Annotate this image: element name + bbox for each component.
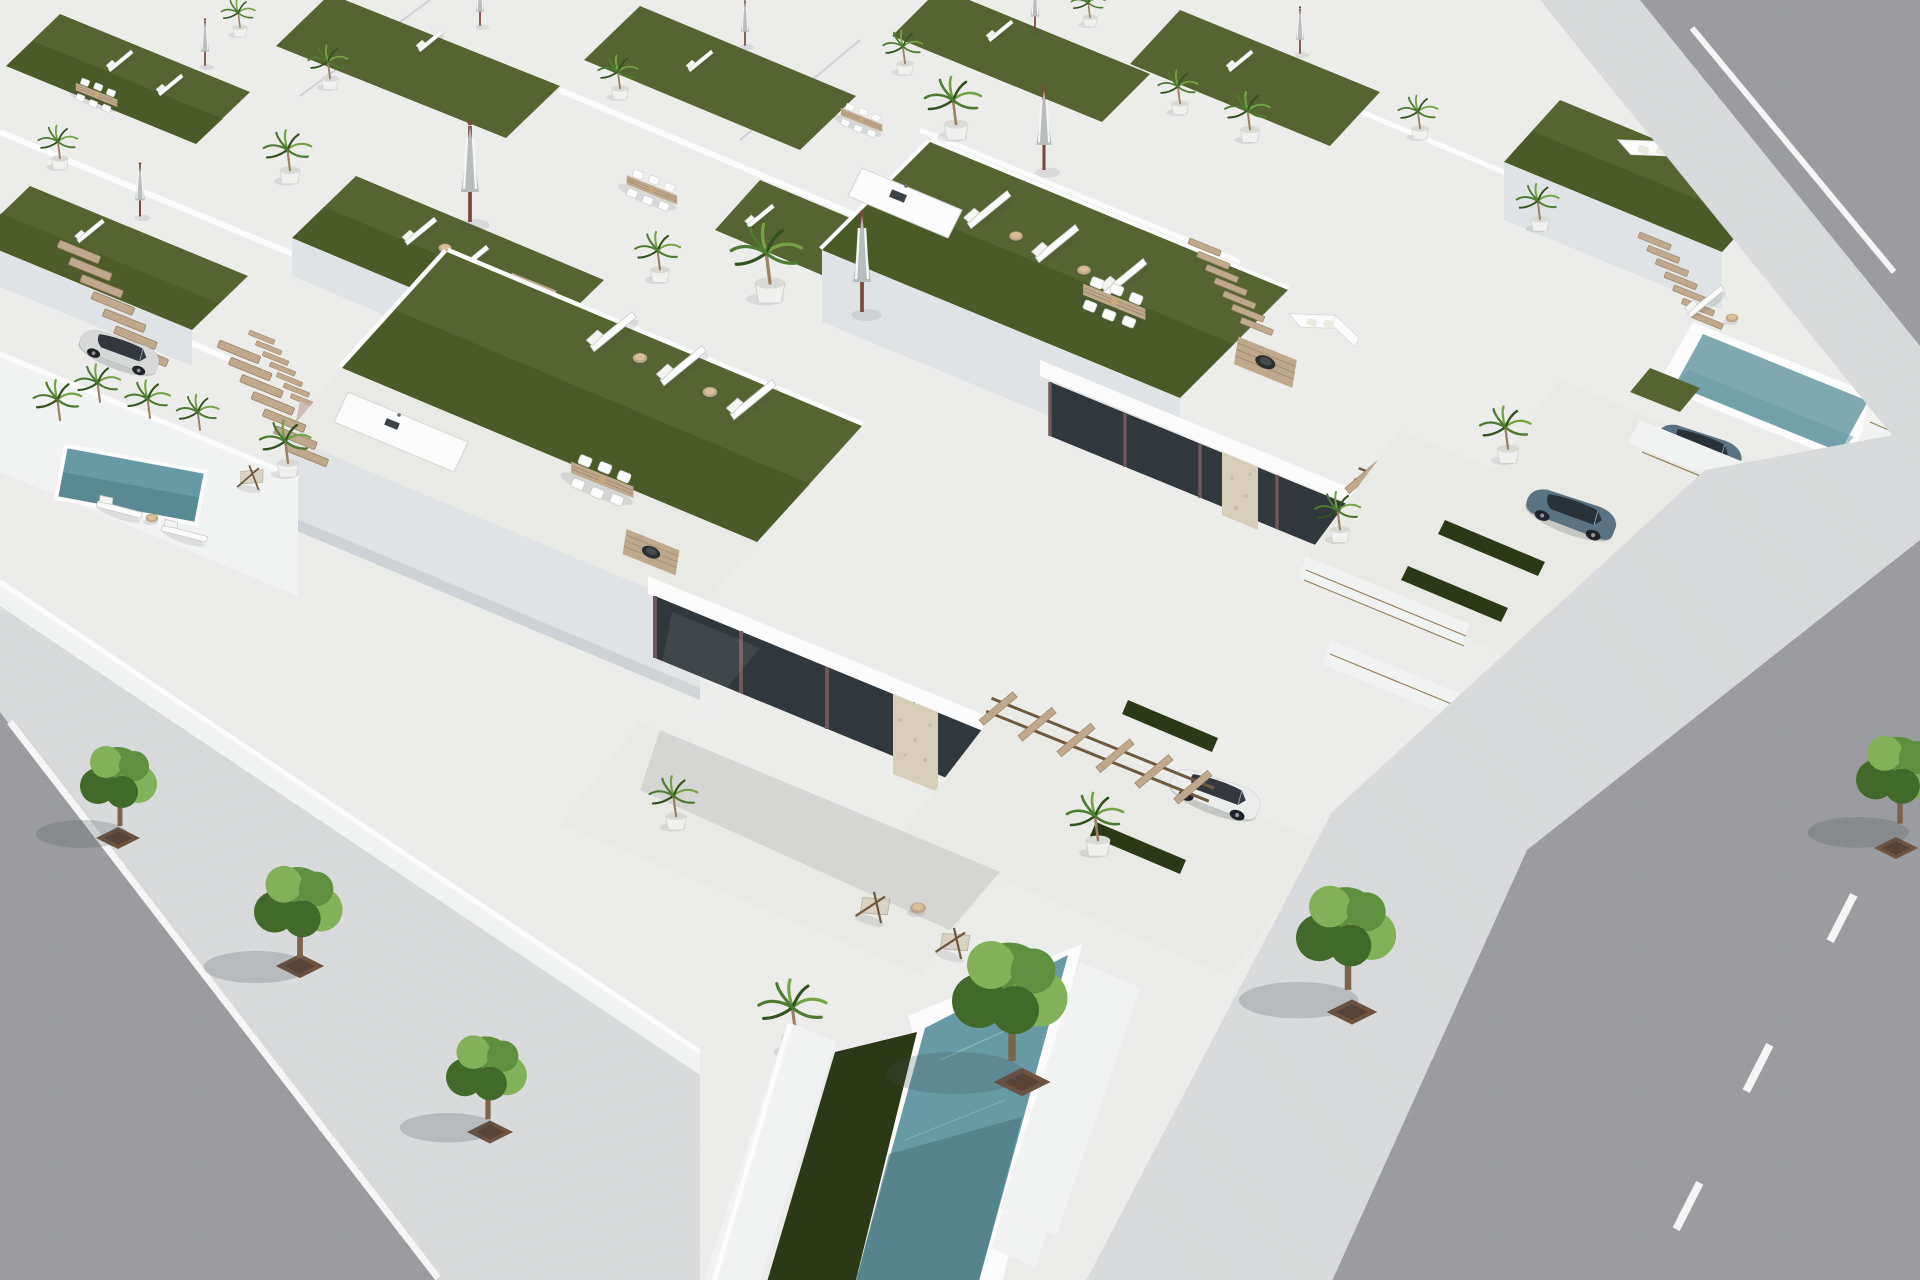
aerial-villa-render	[0, 0, 1920, 1280]
